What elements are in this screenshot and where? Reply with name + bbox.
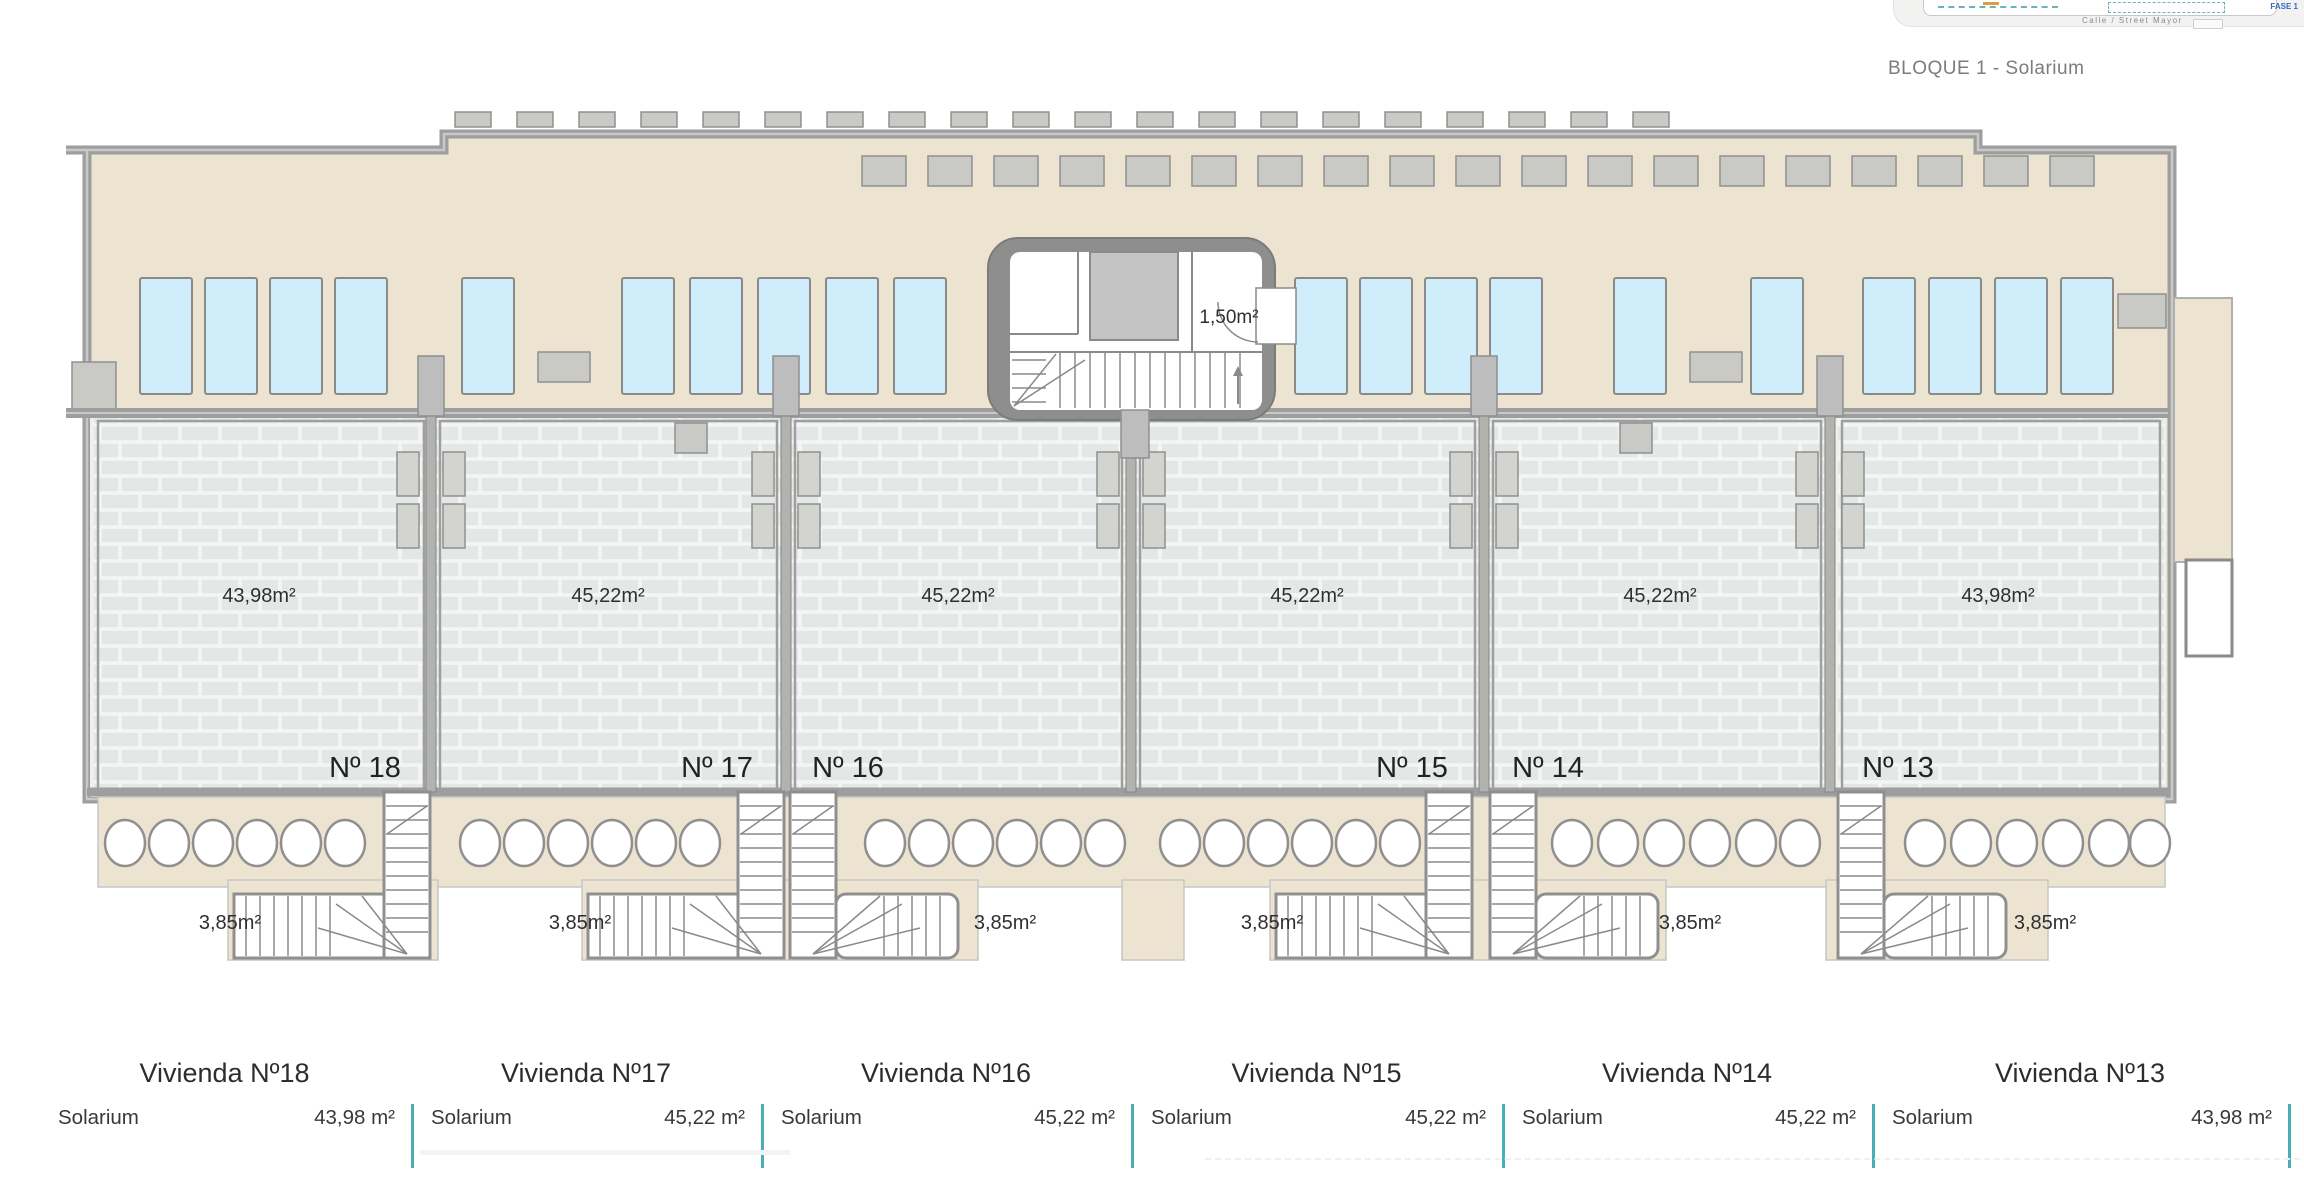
unit-number-13: Nº 13 bbox=[1862, 752, 1934, 785]
floorplan-sheet: FASE 1 Calle / Street Mayor BLOQUE 1 - S… bbox=[0, 0, 2304, 1185]
print-artifact bbox=[420, 1150, 790, 1155]
vivienda-name: Vivienda Nº15 bbox=[1131, 1058, 1502, 1089]
stair-label-17: 3,85m² bbox=[549, 912, 611, 935]
keymap-minibox bbox=[2193, 19, 2223, 29]
solarium-value: 45,22 m² bbox=[664, 1106, 745, 1130]
table-separator bbox=[761, 1104, 764, 1168]
stair-label-15: 3,85m² bbox=[1241, 912, 1303, 935]
area-label-15: 45,22m² bbox=[1270, 585, 1343, 608]
keymap-dashed-box bbox=[2108, 2, 2225, 13]
stair-label-18: 3,85m² bbox=[199, 912, 261, 935]
solarium-value: 45,22 m² bbox=[1034, 1106, 1115, 1130]
solarium-value: 45,22 m² bbox=[1775, 1106, 1856, 1130]
solarium-value: 45,22 m² bbox=[1405, 1106, 1486, 1130]
keymap-dashed-line bbox=[1938, 6, 2058, 8]
table-separator bbox=[411, 1104, 414, 1168]
solarium-label: Solarium bbox=[781, 1106, 862, 1130]
solarium-value: 43,98 m² bbox=[314, 1106, 395, 1130]
vivienda-name: Vivienda Nº17 bbox=[411, 1058, 761, 1089]
solarium-label: Solarium bbox=[431, 1106, 512, 1130]
table-col-13: Vivienda Nº13 Solarium43,98 m² bbox=[1872, 1058, 2288, 1168]
unit-number-17: Nº 17 bbox=[681, 752, 753, 785]
keymap-phase-label: FASE 1 bbox=[2270, 2, 2298, 11]
stair-label-14: 3,85m² bbox=[1659, 912, 1721, 935]
solarium-label: Solarium bbox=[1892, 1106, 1973, 1130]
stair-label-13: 3,85m² bbox=[2014, 912, 2076, 935]
keymap-orange-mark bbox=[1983, 2, 1999, 5]
table-col-15: Vivienda Nº15 Solarium45,22 m² bbox=[1131, 1058, 1502, 1168]
unit-number-14: Nº 14 bbox=[1512, 752, 1584, 785]
solarium-label: Solarium bbox=[58, 1106, 139, 1130]
solarium-value: 43,98 m² bbox=[2191, 1106, 2272, 1130]
vivienda-name: Vivienda Nº14 bbox=[1502, 1058, 1872, 1089]
unit-number-16: Nº 16 bbox=[812, 752, 884, 785]
area-label-16: 45,22m² bbox=[921, 585, 994, 608]
stair-label-16: 3,85m² bbox=[974, 912, 1036, 935]
print-artifact bbox=[1205, 1158, 2300, 1160]
area-label-14: 45,22m² bbox=[1623, 585, 1696, 608]
vivienda-name: Vivienda Nº18 bbox=[38, 1058, 411, 1089]
table-col-16: Vivienda Nº16 Solarium45,22 m² bbox=[761, 1058, 1131, 1168]
unit-number-15: Nº 15 bbox=[1376, 752, 1448, 785]
site-keymap-inset: FASE 1 Calle / Street Mayor bbox=[1893, 0, 2304, 36]
sheet-title: BLOQUE 1 - Solarium bbox=[1888, 58, 2084, 80]
vivienda-name: Vivienda Nº16 bbox=[761, 1058, 1131, 1089]
table-col-14: Vivienda Nº14 Solarium45,22 m² bbox=[1502, 1058, 1872, 1168]
area-label-13: 43,98m² bbox=[1961, 585, 2034, 608]
area-label-18: 43,98m² bbox=[222, 585, 295, 608]
area-label-17: 45,22m² bbox=[571, 585, 644, 608]
vivienda-name: Vivienda Nº13 bbox=[1872, 1058, 2288, 1089]
keymap-street-label: Calle / Street Mayor bbox=[2082, 16, 2183, 25]
unit-number-18: Nº 18 bbox=[329, 752, 401, 785]
floorplan-drawing bbox=[0, 0, 2304, 1185]
core-area-label: 1,50m² bbox=[1199, 307, 1258, 329]
table-col-18: Vivienda Nº18 Solarium43,98 m² bbox=[38, 1058, 411, 1168]
table-separator bbox=[1131, 1104, 1134, 1168]
solarium-label: Solarium bbox=[1151, 1106, 1232, 1130]
solarium-label: Solarium bbox=[1522, 1106, 1603, 1130]
